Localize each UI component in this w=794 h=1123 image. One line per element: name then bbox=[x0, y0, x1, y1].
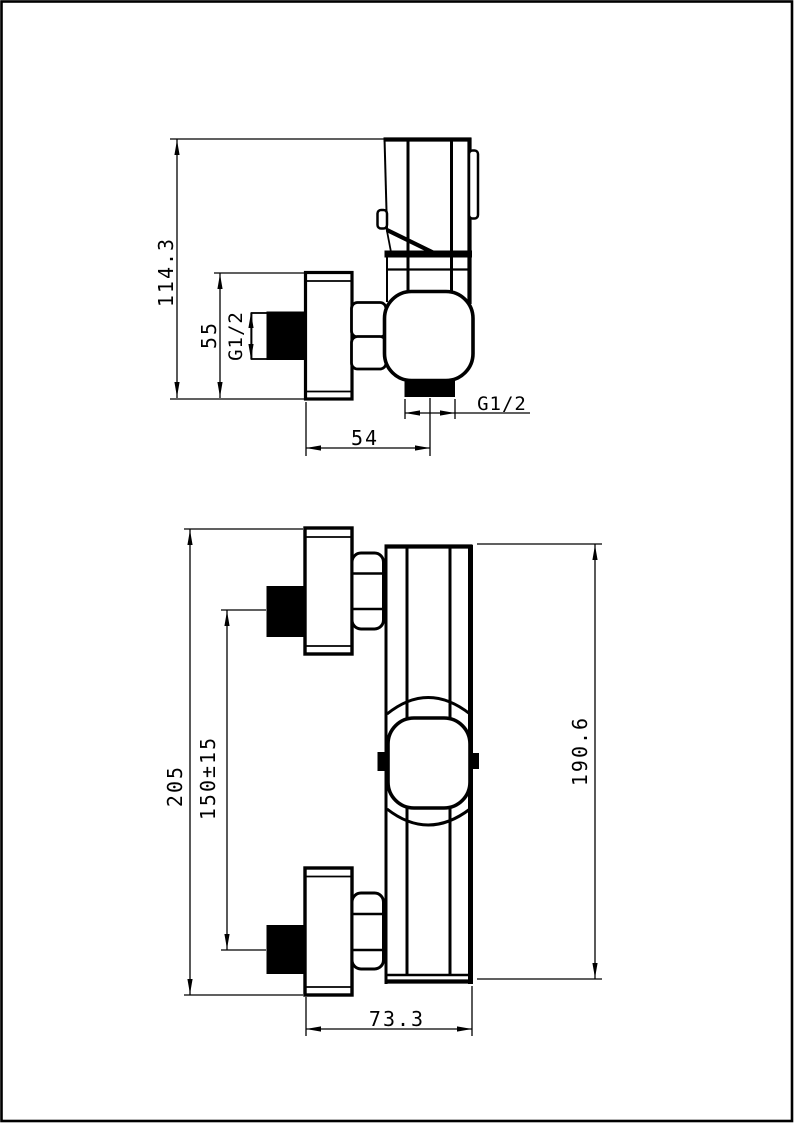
dim-label-outlet-thread: G1/2 bbox=[477, 393, 527, 415]
hex-nut-lower bbox=[352, 337, 387, 370]
drawing-sheet: 114.3 55 G1/2 54 bbox=[0, 0, 794, 1123]
arrowhead-down bbox=[217, 382, 222, 397]
dim-label-escutcheon-height: 55 bbox=[197, 321, 221, 349]
front-view: 205 150±15 190.6 73.3 bbox=[163, 528, 602, 1036]
arrowhead-down bbox=[174, 382, 179, 397]
outlet-thread bbox=[405, 380, 456, 398]
technical-drawing: 114.3 55 G1/2 54 bbox=[0, 0, 794, 1123]
arrowhead-right bbox=[415, 445, 430, 450]
dim-side-outlet-offset: 54 bbox=[306, 398, 430, 456]
dim-label-body-width: 73.3 bbox=[369, 1007, 425, 1031]
dim-front-body-height: 190.6 bbox=[477, 544, 602, 979]
handle-knob bbox=[388, 718, 470, 808]
arrowhead-down bbox=[224, 934, 229, 949]
hex-nut-upper bbox=[352, 553, 384, 629]
arrowhead-down bbox=[592, 963, 597, 978]
housing-diagonal-edge bbox=[387, 230, 434, 253]
dim-label-overall-height: 205 bbox=[163, 765, 187, 807]
arrowhead-left bbox=[405, 410, 420, 415]
wall-escutcheon-lower bbox=[305, 868, 352, 995]
dim-front-inlet-spacing: 150±15 bbox=[196, 610, 266, 950]
dim-side-inlet-thread: G1/2 bbox=[225, 311, 254, 361]
dim-label-inlet-spacing: 150±15 bbox=[196, 736, 220, 820]
arrowhead-up bbox=[224, 611, 229, 626]
joint-band bbox=[385, 251, 473, 258]
arrowhead-up bbox=[187, 530, 192, 545]
inlet-nipple-upper bbox=[267, 586, 306, 637]
wall-escutcheon-upper bbox=[305, 528, 352, 654]
sheet-border bbox=[2, 2, 793, 1122]
dim-label-body-height: 190.6 bbox=[568, 716, 592, 786]
arrowhead-left bbox=[306, 445, 321, 450]
arrowhead-right bbox=[457, 1026, 472, 1031]
housing-right-tab bbox=[469, 151, 478, 219]
dim-label-overall-height: 114.3 bbox=[154, 237, 178, 307]
hex-nut-upper bbox=[352, 303, 387, 338]
arrowhead-down bbox=[187, 979, 192, 994]
arrowhead-up bbox=[592, 545, 597, 560]
housing-left-tab bbox=[378, 210, 388, 229]
arrowhead-up bbox=[217, 274, 222, 289]
handle-ring-arc-bottom bbox=[387, 809, 470, 825]
front-view-fixture bbox=[267, 528, 480, 995]
wall-escutcheon bbox=[306, 273, 353, 400]
inlet-nipple bbox=[267, 312, 307, 361]
handle-ring-arc-top bbox=[387, 698, 470, 715]
arrowhead-left bbox=[306, 1026, 321, 1031]
arrowhead-up bbox=[174, 140, 179, 155]
inlet-collar bbox=[252, 313, 268, 359]
side-view-fixture bbox=[252, 138, 479, 399]
dim-label-outlet-offset: 54 bbox=[351, 426, 379, 450]
dim-label-inlet-thread: G1/2 bbox=[225, 311, 247, 361]
hex-nut-lower bbox=[352, 893, 384, 969]
arrowhead-right bbox=[440, 410, 455, 415]
handle-knob bbox=[385, 292, 474, 381]
side-view: 114.3 55 G1/2 54 bbox=[154, 138, 530, 456]
inlet-nipple-lower bbox=[267, 925, 306, 974]
